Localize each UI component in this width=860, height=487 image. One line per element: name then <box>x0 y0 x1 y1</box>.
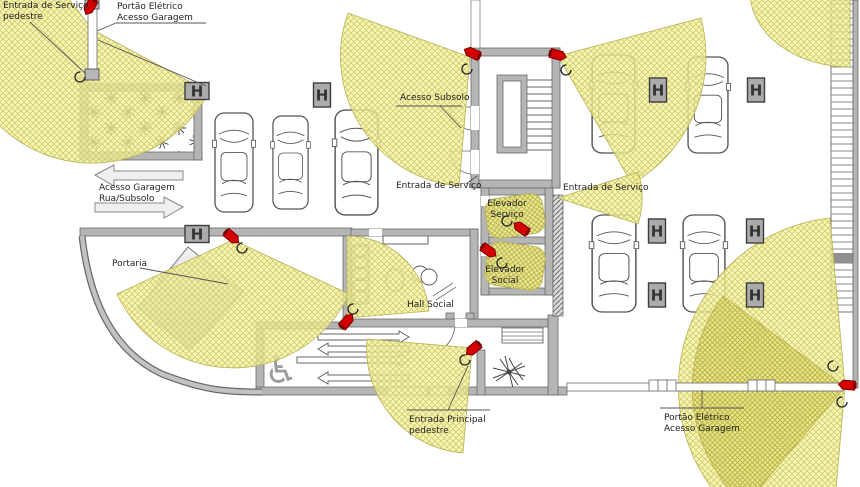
structural-column: H <box>314 83 331 107</box>
svg-text:H: H <box>191 83 204 101</box>
structural-column: H <box>748 78 765 102</box>
label-portao-eletrico-garagem-top: Portão ElétricoAcesso Garagem <box>117 1 193 23</box>
parked-car <box>271 116 311 209</box>
parked-car <box>589 215 638 312</box>
label-entrada-servico-direita: Entrada de Serviço <box>563 183 649 193</box>
svg-text:H: H <box>749 287 762 305</box>
entry-grate <box>502 328 543 343</box>
svg-text:H: H <box>750 82 763 100</box>
floor-plan-page: ♿ <box>0 0 860 487</box>
label-hall-social: Hall Social <box>407 300 454 310</box>
label-leader-line <box>97 23 116 31</box>
svg-text:H: H <box>316 87 329 105</box>
floor-plan-canvas: ♿ <box>0 0 860 487</box>
structural-column: H <box>185 226 209 244</box>
coverage-cone-stair-right <box>558 18 706 184</box>
stair-treads <box>527 80 552 150</box>
coverage-cone-top-right <box>750 0 850 67</box>
structural-column: H <box>649 219 666 243</box>
structural-column: H <box>747 219 764 243</box>
structural-column: H <box>747 283 764 307</box>
structural-column: H <box>649 283 666 307</box>
svg-text:H: H <box>651 287 664 305</box>
structural-column: H <box>650 78 667 102</box>
svg-text:H: H <box>749 223 762 241</box>
svg-text:H: H <box>191 226 204 244</box>
svg-text:H: H <box>651 223 664 241</box>
label-elevador-servico: ElevadorServiço <box>487 199 527 220</box>
label-portaria: Portaria <box>112 259 147 269</box>
label-entrada-principal-pedestre: Entrada Principalpedestre <box>409 415 486 436</box>
label-entrada-servico-esquerda: Entrada de Serviço <box>396 181 482 191</box>
fence-strip <box>471 0 480 48</box>
structural-column: H <box>185 83 209 101</box>
coverage-cone-portaria <box>117 240 349 368</box>
wc-fixture <box>421 269 437 285</box>
parked-car <box>213 113 256 212</box>
svg-text:H: H <box>652 82 665 100</box>
plant <box>493 356 525 388</box>
label-acesso-subsolo: Acesso Subsolo <box>400 93 470 103</box>
